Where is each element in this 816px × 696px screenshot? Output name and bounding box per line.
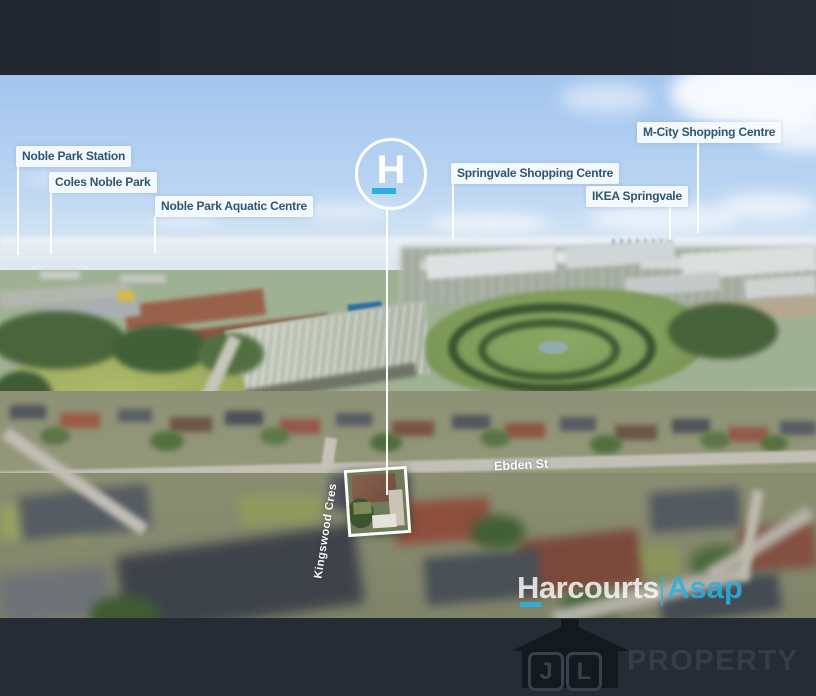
tree — [760, 435, 788, 452]
tree — [480, 429, 510, 447]
street-label-ebden-st: Ebden St — [494, 457, 549, 474]
yellow-awning — [118, 291, 134, 301]
watermark-brand: Harcourts — [517, 570, 659, 606]
tree — [590, 435, 622, 454]
jl-property-house-icon: J L — [511, 621, 629, 688]
tree — [470, 515, 525, 549]
cloud — [560, 83, 652, 113]
house-roof — [780, 421, 816, 435]
label-noble-park-station: Noble Park Station — [16, 146, 131, 167]
tree — [700, 431, 730, 449]
top-letterbox-bar — [0, 0, 816, 75]
property-highlight-frame — [344, 466, 412, 537]
distant-roof — [40, 271, 80, 279]
leader-line-coles-noble-park — [50, 192, 52, 254]
watermark-cyan-underline — [520, 602, 541, 607]
house-roof — [649, 487, 742, 533]
tree-clump — [112, 325, 208, 373]
marker-letter: H — [377, 148, 406, 193]
label-coles-noble-park: Coles Noble Park — [49, 172, 157, 193]
house-roof — [336, 413, 372, 426]
cloud — [718, 193, 816, 219]
house-roof — [560, 417, 596, 431]
watermark-divider — [661, 577, 663, 606]
house-roof — [60, 413, 100, 428]
footer-wordmark-property: PROPERTY — [627, 645, 799, 678]
house-roof — [170, 417, 212, 432]
leader-line-noble-park-station — [17, 167, 19, 255]
harcourts-marker-icon: H — [355, 138, 427, 210]
label-springvale-shopping-centre: Springvale Shopping Centre — [451, 163, 619, 184]
cloud — [588, 205, 738, 231]
logo-letter-j: J — [528, 652, 564, 691]
leader-line-noble-park-aquatic-centre — [154, 216, 156, 253]
logo-letter-l: L — [566, 652, 602, 691]
leader-line-m-city-shopping-centre — [697, 142, 699, 233]
label-m-city-shopping-centre: M-City Shopping Centre — [637, 122, 781, 143]
cloud — [430, 213, 550, 233]
house-roof — [392, 421, 434, 436]
tree — [260, 427, 290, 445]
house-roof — [672, 419, 710, 433]
tree — [40, 427, 70, 445]
house-roof — [505, 423, 545, 438]
house-roof — [225, 411, 263, 425]
house-roof — [118, 409, 152, 422]
tree-clump — [668, 303, 778, 359]
real-estate-aerial-flyer: Noble Park Station Coles Noble Park Nobl… — [0, 0, 816, 696]
pond — [538, 341, 568, 354]
marker-leader-line — [386, 207, 388, 495]
tree — [150, 431, 184, 451]
house-roof — [10, 405, 46, 419]
label-ikea-springvale: IKEA Springvale — [586, 186, 688, 207]
roof-shape — [511, 623, 629, 651]
leader-line-ikea-springvale — [669, 206, 671, 240]
leader-line-springvale-shopping-centre — [452, 183, 454, 238]
property-shed — [372, 514, 397, 529]
watermark-agency: Asap — [667, 570, 743, 606]
house-roof — [452, 415, 490, 429]
label-noble-park-aquatic-centre: Noble Park Aquatic Centre — [155, 196, 313, 217]
marker-cyan-underline — [372, 188, 396, 194]
property-lawn — [353, 501, 372, 514]
house-roof — [615, 425, 657, 440]
lawn — [240, 495, 320, 525]
